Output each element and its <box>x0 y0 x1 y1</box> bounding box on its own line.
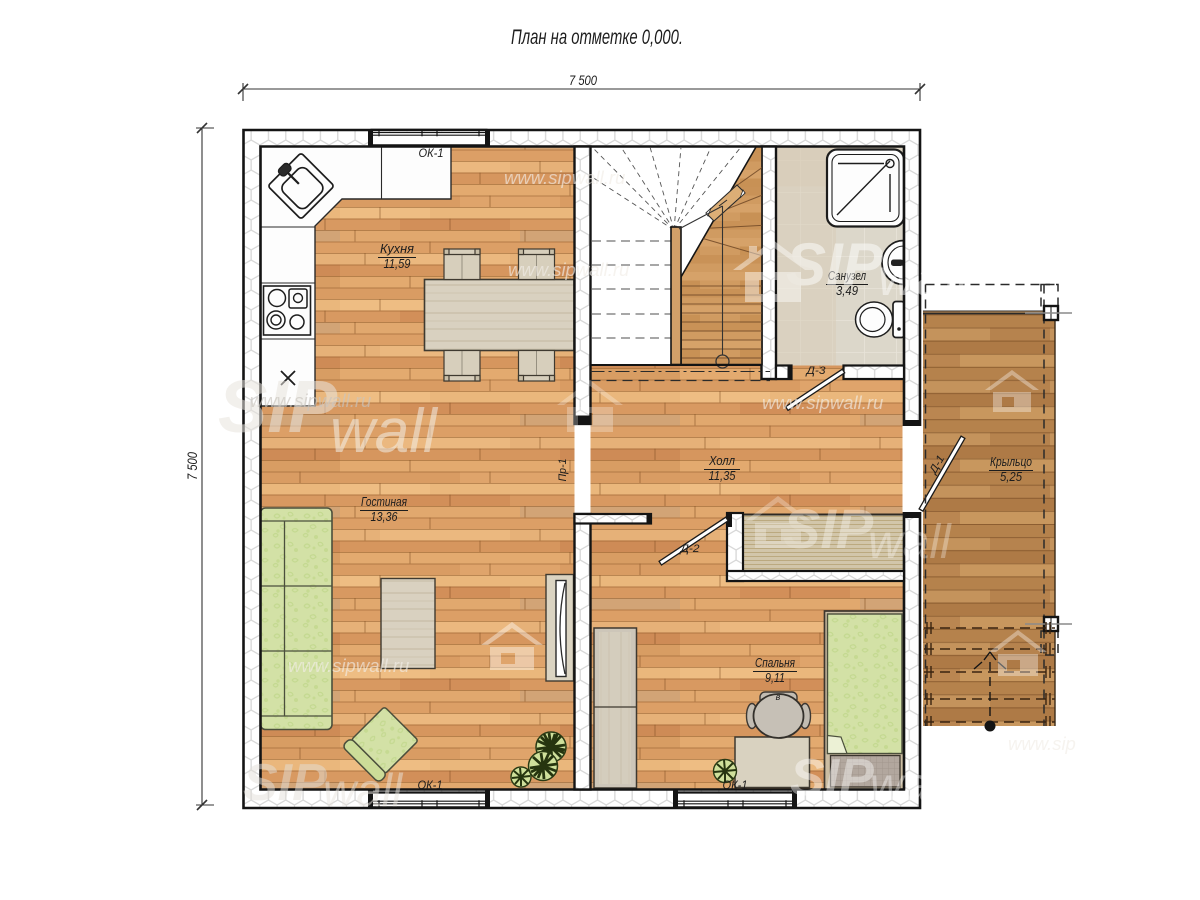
svg-text:Д-2: Д-2 <box>678 543 699 555</box>
svg-text:Пр-1: Пр-1 <box>557 459 569 482</box>
svg-text:ОК-1: ОК-1 <box>418 780 443 792</box>
svg-text:11,35: 11,35 <box>709 468 737 483</box>
svg-text:9,11: 9,11 <box>765 670 785 685</box>
svg-text:11,59: 11,59 <box>384 256 411 271</box>
svg-text:Гостиная: Гостиная <box>361 494 407 509</box>
svg-text:3,49: 3,49 <box>836 283 858 298</box>
svg-text:Санузел: Санузел <box>828 268 866 283</box>
svg-text:Крыльцо: Крыльцо <box>990 454 1032 469</box>
svg-text:7 500: 7 500 <box>184 452 200 480</box>
svg-text:ОК-1: ОК-1 <box>419 148 444 160</box>
svg-text:5,25: 5,25 <box>1000 469 1023 484</box>
svg-text:Д-3: Д-3 <box>804 365 826 377</box>
svg-text:Холл: Холл <box>708 453 735 468</box>
svg-text:Спальня: Спальня <box>755 655 795 670</box>
svg-text:Кухня: Кухня <box>380 241 414 256</box>
svg-text:7 500: 7 500 <box>569 72 597 88</box>
svg-text:в: в <box>776 692 781 702</box>
svg-text:План на отметке 0,000.: План на отметке 0,000. <box>511 26 683 49</box>
svg-text:13,36: 13,36 <box>371 509 399 524</box>
svg-text:ОК-1: ОК-1 <box>723 780 748 792</box>
